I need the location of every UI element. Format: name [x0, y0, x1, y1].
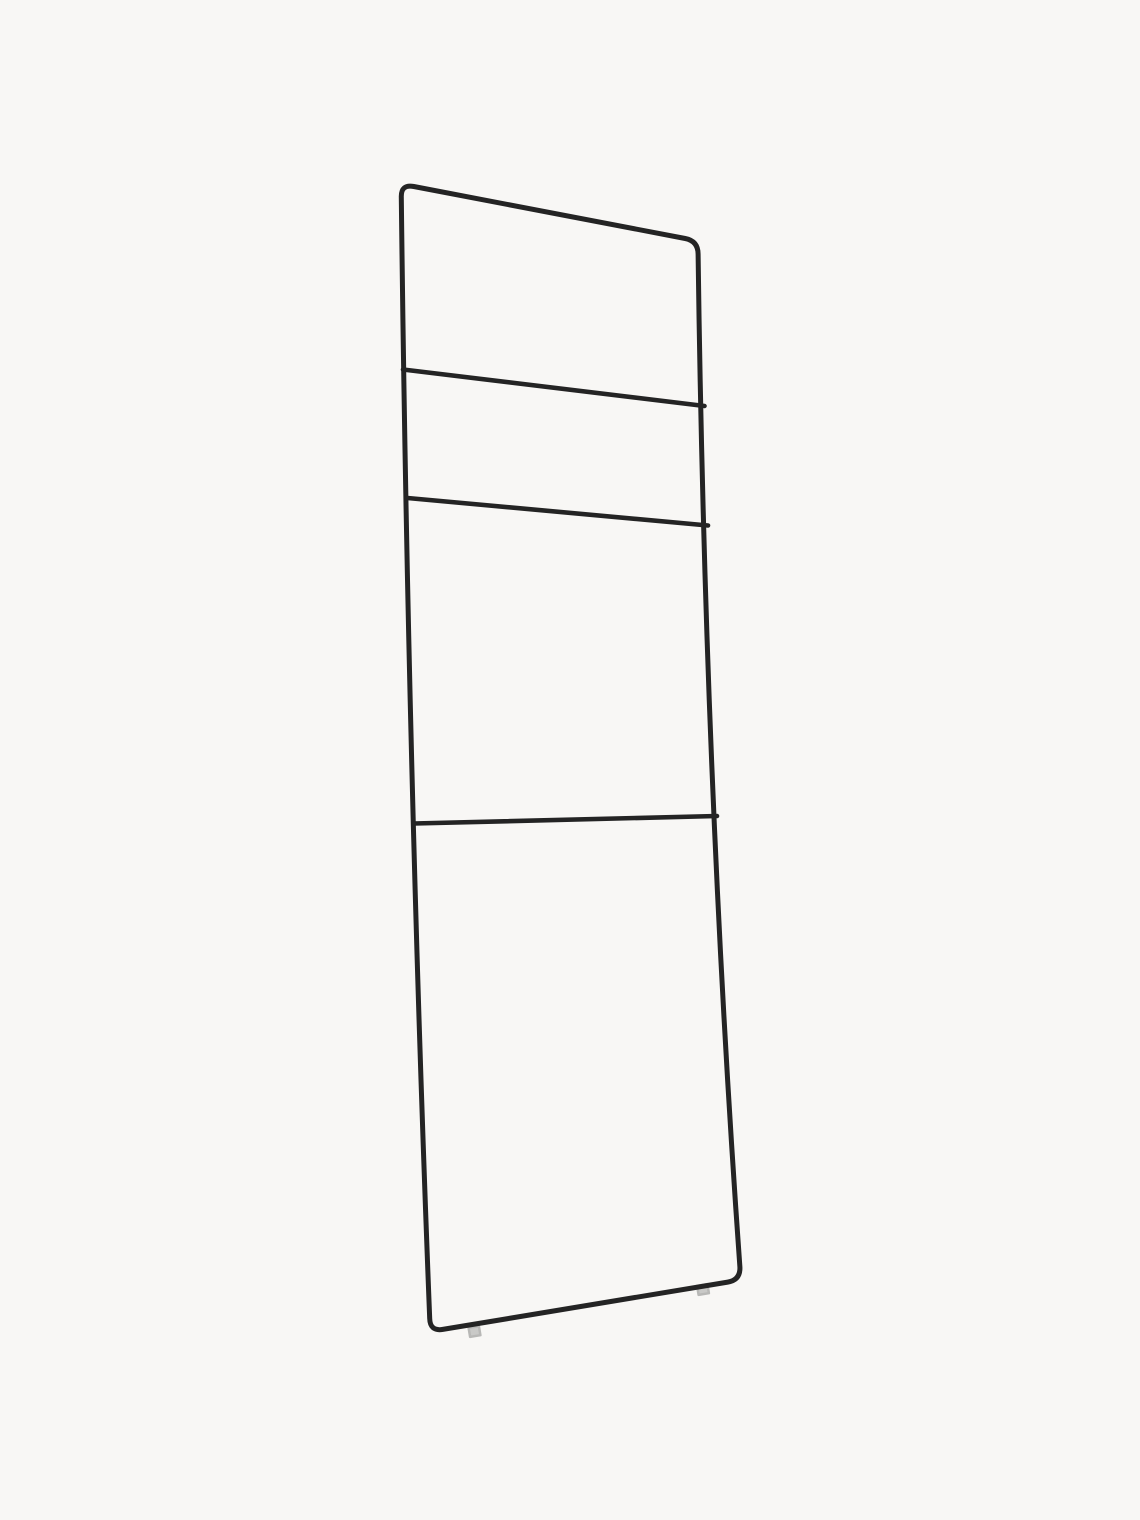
ladder-foot-left [469, 1326, 481, 1337]
product-photo-towel-ladder [0, 0, 1140, 1520]
photo-background [0, 0, 1140, 1520]
product-photo-canvas [0, 0, 1140, 1520]
